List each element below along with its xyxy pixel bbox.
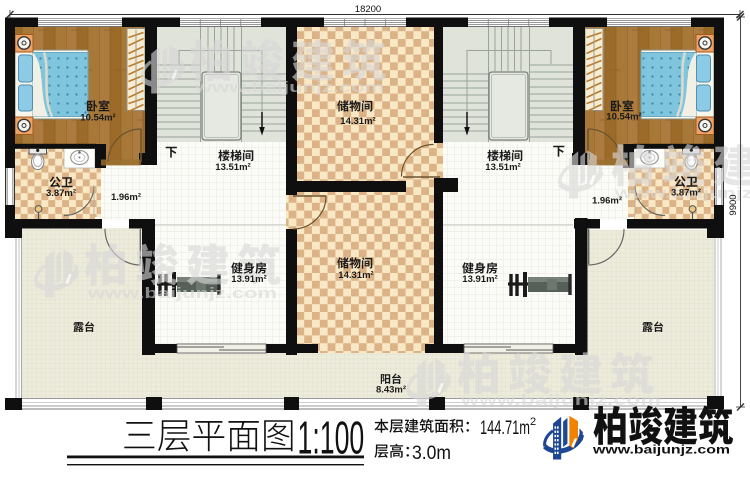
svg-text:18200: 18200 bbox=[355, 4, 381, 15]
svg-text:9900: 9900 bbox=[728, 194, 739, 215]
svg-text:14.31m²: 14.31m² bbox=[338, 270, 373, 281]
svg-text:www.baijunjz.com: www.baijunjz.com bbox=[194, 79, 384, 96]
svg-text:10.54m²: 10.54m² bbox=[80, 113, 115, 124]
svg-text:13.51m²: 13.51m² bbox=[215, 162, 250, 173]
svg-text:13.51m²: 13.51m² bbox=[485, 162, 520, 173]
svg-text:144.71m: 144.71m bbox=[480, 418, 530, 439]
svg-text:www.baijunjz.com: www.baijunjz.com bbox=[459, 392, 661, 409]
svg-text:www.baijunjz.com: www.baijunjz.com bbox=[592, 445, 730, 457]
svg-text:10.54m²: 10.54m² bbox=[606, 112, 641, 123]
svg-text:1.96m²: 1.96m² bbox=[592, 196, 622, 207]
svg-text:2: 2 bbox=[530, 416, 536, 428]
svg-text:3.0m: 3.0m bbox=[412, 443, 451, 464]
svg-text:13.91m²: 13.91m² bbox=[462, 274, 497, 285]
svg-text:3.87m²: 3.87m² bbox=[46, 188, 76, 199]
svg-text:www.baijunjz.com: www.baijunjz.com bbox=[87, 285, 277, 302]
svg-text:14.31m²: 14.31m² bbox=[340, 116, 375, 127]
svg-text:13.91m²: 13.91m² bbox=[231, 274, 266, 285]
svg-text:3.87m²: 3.87m² bbox=[671, 188, 701, 199]
svg-text:8.43m²: 8.43m² bbox=[376, 385, 406, 396]
svg-text:1.96m²: 1.96m² bbox=[111, 192, 141, 203]
